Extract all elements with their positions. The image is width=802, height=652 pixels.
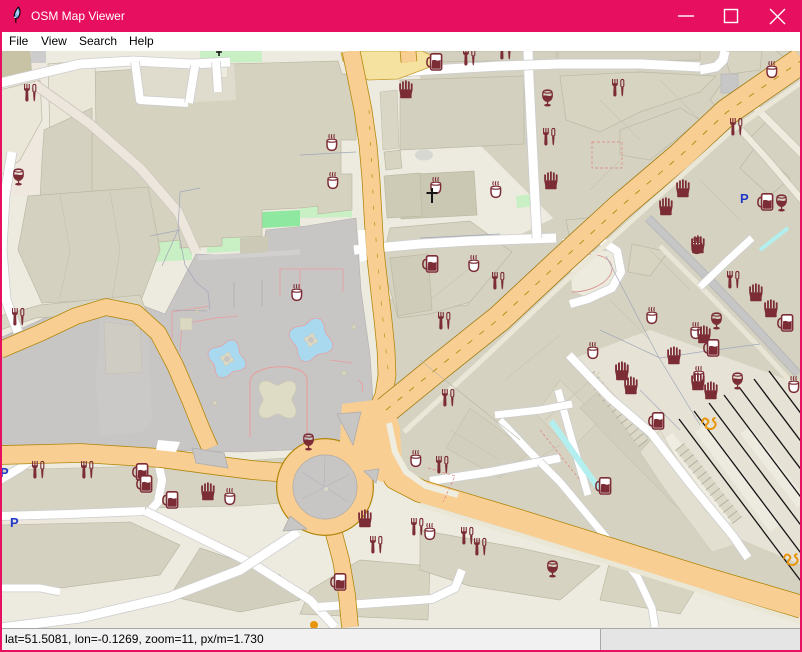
svg-text:P: P — [10, 515, 19, 530]
svg-text:P: P — [2, 465, 9, 480]
svg-text:P: P — [740, 191, 749, 206]
